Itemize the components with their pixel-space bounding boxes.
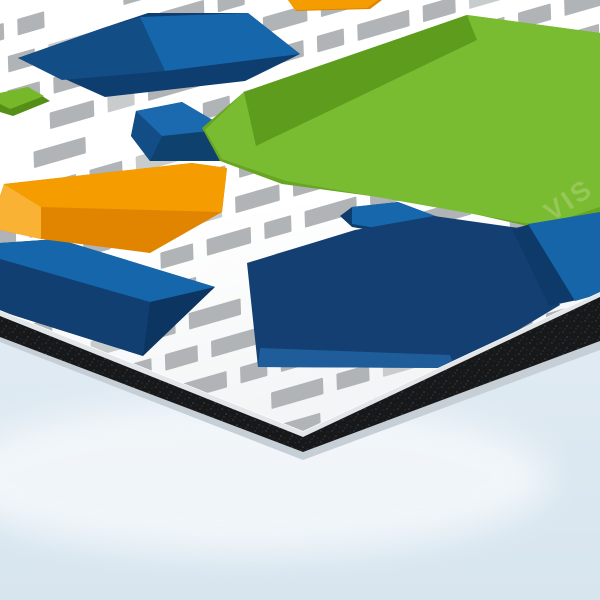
product-render: VIS bbox=[0, 0, 600, 600]
product-render-svg: VIS bbox=[0, 0, 600, 600]
